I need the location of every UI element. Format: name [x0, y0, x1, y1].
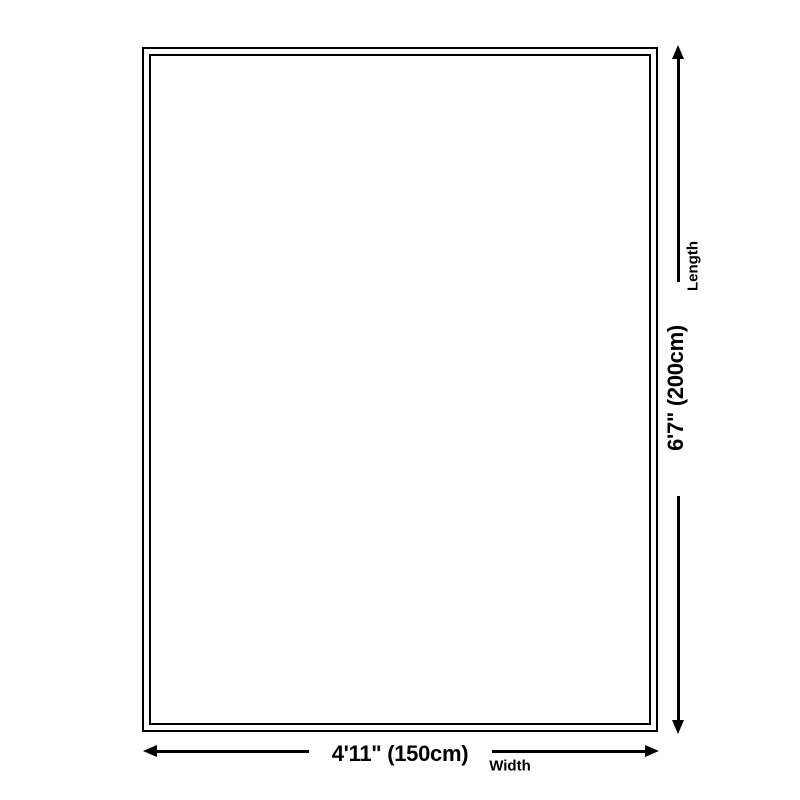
- length-value: 6'7" (200cm): [663, 325, 689, 451]
- length-dimension-line-lower: [677, 496, 680, 722]
- arrowhead-left-icon: [143, 745, 157, 757]
- width-value: 4'11" (150cm): [332, 741, 469, 767]
- arrowhead-down-icon: [672, 720, 684, 734]
- dimension-diagram: 6'7" (200cm) Length 4'11" (150cm) Width: [0, 0, 800, 800]
- length-label: Length: [685, 241, 702, 291]
- arrowhead-up-icon: [672, 45, 684, 59]
- width-dimension-line-left: [157, 750, 309, 753]
- width-label: Width: [489, 758, 531, 775]
- product-outline-inner: [149, 54, 651, 725]
- width-dimension-line-right: [492, 750, 646, 753]
- arrowhead-right-icon: [645, 745, 659, 757]
- length-dimension-line-upper: [677, 58, 680, 282]
- product-outline-outer: [142, 47, 658, 732]
